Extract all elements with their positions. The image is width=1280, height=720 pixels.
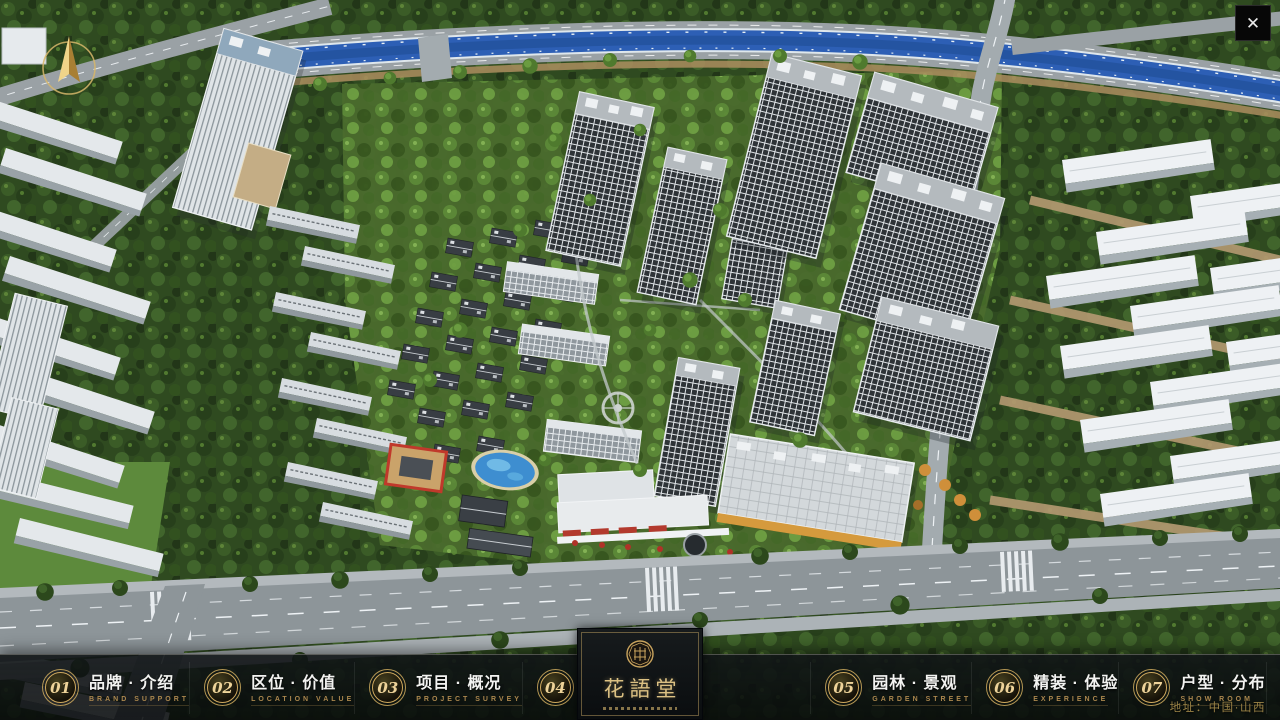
nav-item-project[interactable]: 03 项目 · 概况 PROJECT SURVEY [354,662,522,714]
nav-number-badge: 05 [825,669,862,706]
logo-seal-icon [625,639,655,669]
nav-sublabel: EXPERIENCE [1033,696,1108,706]
nav-number-badge: 06 [986,669,1023,706]
masterplan-3d-viewport[interactable] [0,0,1280,720]
nav-sublabel: GARDEN STREET [872,696,971,706]
nav-item-location[interactable]: 02 区位 · 价值 LOCATION VALUE [189,662,354,714]
scene-entrance-plaza-canopy [684,534,706,556]
nav-item-brand[interactable]: 01 品牌 · 介绍 BRAND SUPPORT [28,662,189,714]
nav-item-garden[interactable]: 05 园林 · 景观 GARDEN STREET [810,662,971,714]
nav-label: 项目 · 概况 [416,669,522,693]
scene-bridge [418,34,452,82]
nav-sublabel: BRAND SUPPORT [89,696,189,706]
nav-number-badge: 01 [42,669,79,706]
scene-red-courtyard [385,444,446,491]
nav-item-interior[interactable]: 06 精装 · 体验 EXPERIENCE [971,662,1118,714]
close-button[interactable]: ✕ [1235,5,1271,41]
nav-sublabel: PROJECT SURVEY [416,696,522,706]
project-logo-tagline-rule [603,707,677,710]
compass-icon[interactable] [36,30,102,102]
nav-number-badge: 02 [204,669,241,706]
project-logo-title: 花語堂 [604,673,682,703]
nav-label: 园林 · 景观 [872,669,971,693]
nav-label: 区位 · 价值 [251,669,354,693]
nav-number-badge: 07 [1133,669,1170,706]
nav-number-badge: 03 [369,669,406,706]
project-logo-panel[interactable]: 花語堂 [577,628,703,720]
nav-label: 品牌 · 介绍 [89,669,189,693]
app-window: ✕ 01 品牌 · 介绍 BRAND SUPPORT 02 区位 · 价值 LO… [0,0,1280,720]
project-address: 地址：中国·山西 [1170,699,1266,715]
nav-sublabel: LOCATION VALUE [251,696,354,706]
close-icon: ✕ [1246,15,1260,32]
nav-number-badge: 04 [537,669,574,706]
nav-label: 户型 · 分布 [1180,669,1265,693]
nav-item-community[interactable]: 08 一房 · 一景 COMMUNITY [1266,662,1280,714]
nav-label: 精装 · 体验 [1033,669,1118,693]
